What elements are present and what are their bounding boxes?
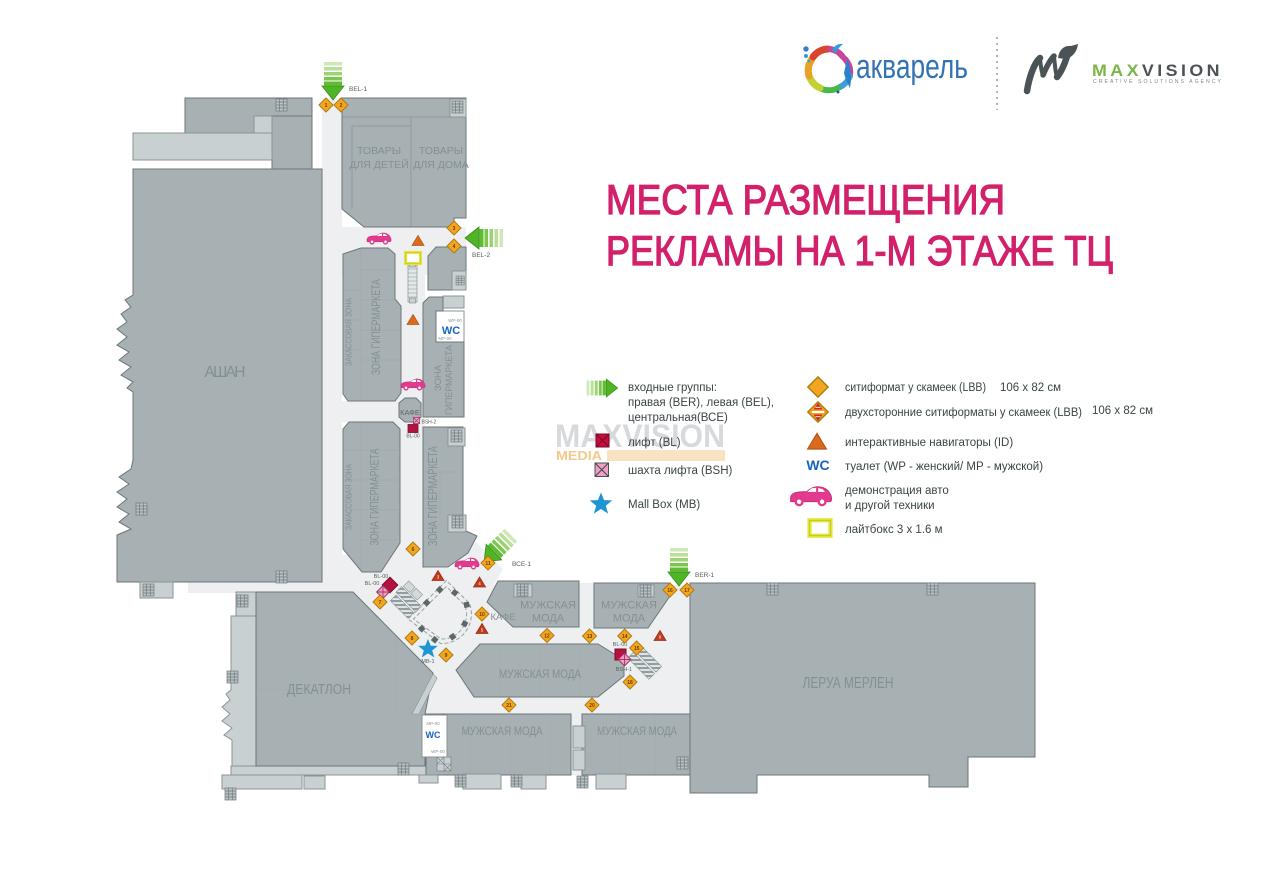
svg-text:12: 12	[544, 633, 550, 639]
svg-text:BL-00: BL-00	[365, 581, 380, 587]
svg-text:ТОВАРЫ: ТОВАРЫ	[357, 145, 401, 157]
svg-text:МЕСТА РАЗМЕЩЕНИЯ: МЕСТА РАЗМЕЩЕНИЯ	[606, 176, 1005, 223]
svg-text:демонстрация авто: демонстрация авто	[845, 485, 949, 497]
svg-text:BER-1: BER-1	[695, 572, 715, 579]
svg-text:21: 21	[506, 703, 512, 709]
svg-text:20: 20	[589, 703, 595, 709]
svg-text:туалет (WP - женский/ МР - муж: туалет (WP - женский/ МР - мужской)	[845, 461, 1043, 473]
svg-text:входные группы:: входные группы:	[628, 382, 717, 394]
svg-text:МОДА: МОДА	[613, 613, 646, 625]
svg-text:правая (BER), левая (BEL),: правая (BER), левая (BEL),	[628, 397, 774, 409]
svg-text:ТОВАРЫ: ТОВАРЫ	[419, 145, 463, 157]
svg-text:10: 10	[479, 612, 485, 618]
svg-text:MAXVISION: MAXVISION	[1092, 62, 1223, 80]
svg-text:МОДА: МОДА	[532, 613, 565, 625]
svg-text:КАФЕ: КАФЕ	[400, 408, 420, 417]
svg-text:9: 9	[445, 653, 448, 659]
svg-text:ЗАКАССОВАЯ ЗОНА: ЗАКАССОВАЯ ЗОНА	[345, 463, 354, 530]
svg-text:18: 18	[627, 680, 633, 686]
svg-text:6: 6	[412, 547, 415, 553]
svg-text:14: 14	[622, 634, 628, 640]
svg-text:4: 4	[453, 244, 456, 250]
svg-text:17: 17	[684, 588, 690, 594]
svg-text:BEL-1: BEL-1	[349, 86, 367, 93]
svg-text:7: 7	[379, 600, 382, 606]
svg-text:МУЖСКАЯ: МУЖСКАЯ	[601, 600, 657, 612]
svg-text:13: 13	[587, 634, 593, 640]
svg-text:ЛЕРУА МЕРЛЕН: ЛЕРУА МЕРЛЕН	[803, 675, 894, 692]
svg-text:ЗОНА ГИПЕРМАРКЕТА: ЗОНА ГИПЕРМАРКЕТА	[371, 279, 383, 375]
svg-text:2: 2	[340, 103, 343, 109]
svg-text:и другой техники: и другой техники	[845, 500, 935, 512]
svg-text:ГИПЕРМАРКЕТА: ГИПЕРМАРКЕТА	[444, 344, 455, 415]
svg-text:106 x 82 см: 106 x 82 см	[1092, 405, 1153, 417]
svg-text:ДЛЯ ДОМА: ДЛЯ ДОМА	[413, 159, 469, 171]
svg-text:МУЖСКАЯ МОДА: МУЖСКАЯ МОДА	[597, 726, 677, 738]
svg-text:акварель: акварель	[856, 48, 968, 86]
svg-text:106 х 82 см: 106 х 82 см	[1000, 382, 1061, 394]
svg-text:MB-1: MB-1	[421, 659, 434, 665]
svg-text:ЗАКАССОВАЯ ЗОНА: ЗАКАССОВАЯ ЗОНА	[345, 297, 354, 366]
svg-text:ДЕКАТЛОН: ДЕКАТЛОН	[287, 682, 351, 698]
svg-text:МУЖСКАЯ: МУЖСКАЯ	[520, 600, 576, 612]
svg-text:BSH-2: BSH-2	[422, 420, 437, 426]
svg-text:ЗОНА: ЗОНА	[433, 364, 444, 391]
svg-text:МУЖСКАЯ МОДА: МУЖСКАЯ МОДА	[462, 726, 543, 738]
svg-text:WC: WC	[806, 457, 829, 473]
svg-text:1: 1	[325, 103, 328, 109]
svg-text:BEL-2: BEL-2	[472, 252, 490, 259]
svg-text:КАФЕ: КАФЕ	[490, 612, 515, 623]
svg-text:15: 15	[634, 646, 640, 652]
svg-text:ситиформат у скамеек (LBB): ситиформат у скамеек (LBB)	[845, 382, 986, 394]
svg-text:ЗОНА ГИПЕРМАРКЕТА: ЗОНА ГИПЕРМАРКЕТА	[370, 448, 382, 545]
svg-text:АШАН: АШАН	[205, 364, 246, 381]
svg-text:ВСЕ-1: ВСЕ-1	[512, 561, 531, 568]
svg-text:шахта лифта (BSH): шахта лифта (BSH)	[628, 465, 733, 477]
svg-text:двухсторонние ситиформаты у ск: двухсторонние ситиформаты у скамеек (LBB…	[845, 407, 1082, 419]
svg-text:11: 11	[485, 561, 491, 567]
svg-text:интерактивные навигаторы (ID): интерактивные навигаторы (ID)	[845, 437, 1013, 449]
svg-text:3: 3	[453, 226, 456, 232]
svg-text:16: 16	[667, 588, 673, 594]
svg-text:МУЖСКАЯ МОДА: МУЖСКАЯ МОДА	[499, 669, 581, 681]
svg-text:BL-00: BL-00	[374, 574, 389, 580]
svg-text:центральная(ВСЕ): центральная(ВСЕ)	[628, 412, 728, 424]
svg-text:WP-00: WP-00	[448, 318, 462, 323]
svg-text:WC: WC	[426, 730, 441, 740]
svg-text:MP-00: MP-00	[438, 336, 452, 341]
svg-text:Mall Box (MB): Mall Box (MB)	[628, 499, 700, 511]
svg-text:ДЛЯ ДЕТЕЙ: ДЛЯ ДЕТЕЙ	[349, 158, 409, 171]
svg-text:8: 8	[411, 636, 414, 642]
svg-text:РЕКЛАМЫ НА 1-М ЭТАЖЕ ТЦ: РЕКЛАМЫ НА 1-М ЭТАЖЕ ТЦ	[606, 227, 1113, 274]
svg-text:BSH-1: BSH-1	[616, 667, 632, 673]
svg-text:MP-00: MP-00	[426, 721, 440, 726]
svg-text:лифт (BL): лифт (BL)	[628, 437, 681, 449]
svg-text:ЗОНА ГИПЕРМАРКЕТА: ЗОНА ГИПЕРМАРКЕТА	[425, 446, 440, 546]
svg-text:MEDIA: MEDIA	[556, 449, 602, 463]
svg-text:лайтбокс 3 х 1.6 м: лайтбокс 3 х 1.6 м	[845, 524, 943, 536]
svg-text:CREATIVE SOLUTIONS AGENCY: CREATIVE SOLUTIONS AGENCY	[1093, 79, 1223, 85]
svg-text:BL-00: BL-00	[406, 434, 420, 440]
svg-text:WP-00: WP-00	[431, 749, 445, 754]
